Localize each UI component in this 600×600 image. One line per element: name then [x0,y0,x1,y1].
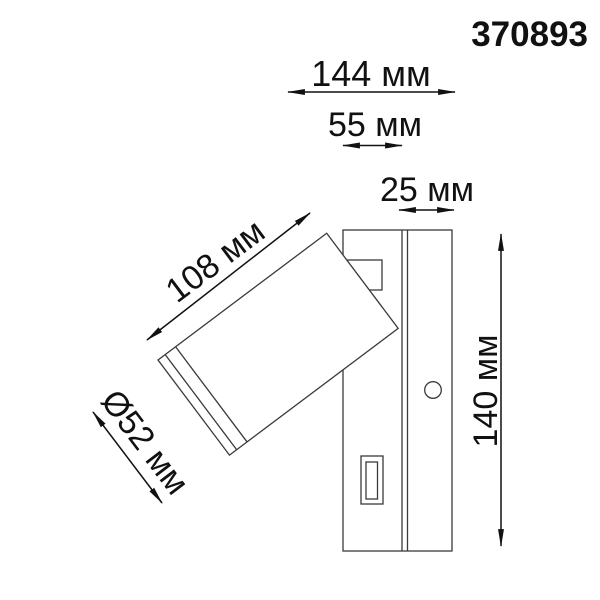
technical-drawing-canvas: 370893 144 мм 55 мм 25 мм 108 мм Ø52 мм … [0,0,600,600]
button-hole [425,382,442,399]
diagram-page: 370893 144 мм 55 мм 25 мм 108 мм Ø52 мм … [0,0,600,600]
dim-label-housing-width: 55 мм [328,106,422,144]
dim-label-spot-diameter: Ø52 мм [93,383,196,502]
dim-label-overall-height: 140 мм [467,335,505,448]
part-number: 370893 [471,15,588,54]
usb-port-outer [361,456,383,504]
usb-port-inner [366,462,378,499]
dim-label-base-depth: 25 мм [380,171,474,209]
dim-label-overall-width: 144 мм [311,53,431,94]
